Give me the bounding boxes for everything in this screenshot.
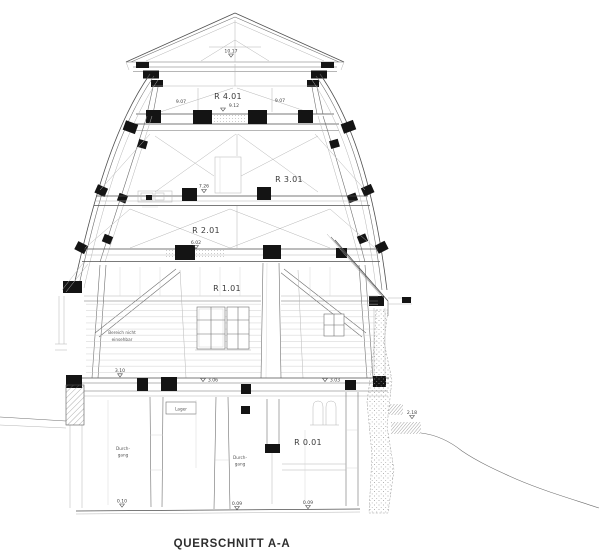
- window-right: [324, 314, 344, 336]
- level-r101-walls: [84, 263, 378, 378]
- cross-section-drawing: 10.17 9.07 9.12 9.07 7.26 6.02 3.10 3.06…: [0, 0, 600, 560]
- room-label-r201: R 2.01: [192, 226, 220, 235]
- note-not-visible-line1: Bereich nicht: [108, 330, 136, 335]
- dimension-terrain-right: 2.18: [407, 410, 417, 416]
- dimension-ground-center: 3.06: [208, 378, 218, 384]
- passage2-line1: Durch-: [233, 455, 247, 460]
- masonry-pier-hatched: [66, 385, 84, 425]
- floor-4: [131, 110, 339, 131]
- room-label-r101: R 1.01: [213, 284, 241, 293]
- dimension-base-right: 0.09: [303, 500, 313, 506]
- floor-3: [94, 187, 370, 207]
- right-curved-wall: [312, 74, 389, 306]
- room-label-r401: R 4.01: [214, 92, 242, 101]
- room-label-r301: R 3.01: [275, 175, 303, 184]
- passage2-line2: gang: [235, 462, 246, 467]
- hoist-detail: [138, 191, 172, 207]
- ground-floor: [66, 375, 389, 514]
- dimension-level4-center: 9.12: [229, 103, 239, 109]
- passage1-line1: Durch-: [116, 446, 130, 451]
- dimension-ground-left: 3.10: [115, 368, 125, 374]
- step-upper: [389, 404, 403, 415]
- dimension-level2: 6.02: [191, 240, 201, 246]
- dimension-level3: 7.26: [199, 184, 209, 190]
- roof: [126, 13, 344, 72]
- passage1-line2: gang: [118, 453, 129, 458]
- room-labels: R 4.01 R 3.01 R 2.01 R 1.01 R 0.01: [192, 92, 322, 447]
- room-label-r001: R 0.01: [294, 438, 322, 447]
- drawing-title: QUERSCHNITT A-A: [174, 538, 291, 550]
- dimension-ground-right: 3.03: [330, 378, 340, 384]
- dimension-level4-left: 9.07: [176, 99, 186, 105]
- window-center: [227, 307, 249, 349]
- dimension-base-left: 0.10: [117, 499, 127, 505]
- dimension-base-center: 0.09: [232, 501, 242, 507]
- storage-label: Lager: [175, 407, 187, 412]
- note-not-visible-line2: einsehbar: [112, 337, 133, 342]
- dimension-roof-apex: 10.17: [224, 49, 237, 55]
- dimension-level4-right: 9.07: [275, 98, 285, 104]
- arched-window: [310, 401, 339, 425]
- step-lower: [391, 422, 421, 434]
- level-r201-framing: [85, 206, 375, 248]
- window-left: [197, 307, 225, 349]
- ground-line-right: [421, 433, 599, 508]
